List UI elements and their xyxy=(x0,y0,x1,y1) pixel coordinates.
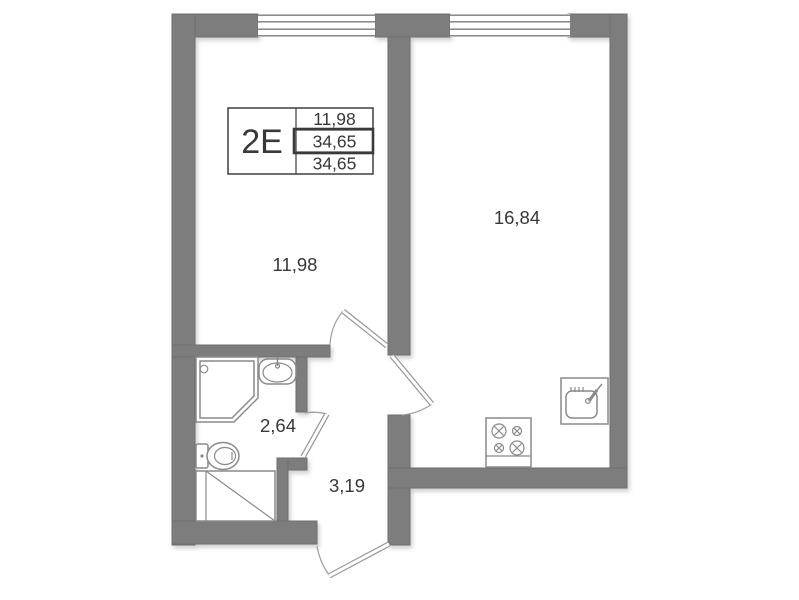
unit-type-label: 2E xyxy=(241,123,283,161)
wall-right xyxy=(610,14,627,488)
door-living-room-icon xyxy=(330,311,387,346)
wall-top-middle xyxy=(375,14,450,37)
door-bathroom-icon xyxy=(303,412,327,457)
toilet-tank-button xyxy=(200,454,203,457)
stove-icon xyxy=(486,418,531,467)
wall-bathroom-stub-vertical xyxy=(277,458,288,521)
wall-living-bathroom xyxy=(172,345,330,357)
door-leaf xyxy=(392,356,432,404)
door-swing-arc xyxy=(305,412,327,414)
door-entrance-icon xyxy=(317,544,389,576)
wall-partition-center xyxy=(388,37,410,355)
niche-outline xyxy=(196,471,275,521)
shower-icon xyxy=(196,357,258,422)
floor-plan-canvas: 2E 11,98 34,65 34,65 11,98 16,84 2,64 3,… xyxy=(0,0,799,600)
washbasin-icon xyxy=(259,357,296,384)
unit-area-value-2: 34,65 xyxy=(313,132,357,152)
living-room-area-label: 11,98 xyxy=(273,254,318,275)
door-leaf xyxy=(343,311,387,346)
shower-outline xyxy=(196,357,258,422)
floor-plan: 2E 11,98 34,65 34,65 11,98 16,84 2,64 3,… xyxy=(0,0,799,600)
hallway-area-label: 3,19 xyxy=(329,475,365,496)
toilet-bowl xyxy=(207,443,239,470)
door-kitchen-icon xyxy=(392,356,432,415)
wall-kitchen-bottom xyxy=(388,468,627,488)
door-swing-arc xyxy=(330,311,343,345)
appliance-niche-icon xyxy=(196,471,275,521)
door-leaf xyxy=(303,414,327,457)
unit-area-value-1: 11,98 xyxy=(313,109,356,129)
wall-bathroom-right-upper xyxy=(296,357,307,412)
door-swing-arc xyxy=(402,404,432,415)
window-kitchen-icon xyxy=(450,14,570,37)
unit-area-value-3: 34,65 xyxy=(313,154,357,174)
window-glass xyxy=(450,14,570,37)
wall-bottom-left xyxy=(172,521,317,544)
toilet-icon xyxy=(196,443,239,470)
wall-left xyxy=(172,14,195,545)
window-glass xyxy=(258,14,375,37)
title-block: 2E 11,98 34,65 34,65 xyxy=(228,108,373,174)
bathroom-area-label: 2,64 xyxy=(260,415,296,436)
kitchen-area-label: 16,84 xyxy=(494,207,540,228)
door-swing-arc xyxy=(317,546,329,575)
walls xyxy=(172,14,627,545)
window-living-room-icon xyxy=(258,14,375,37)
stove-outline xyxy=(486,418,531,467)
door-leaf xyxy=(329,544,389,576)
kitchen-sink-icon xyxy=(561,378,608,424)
